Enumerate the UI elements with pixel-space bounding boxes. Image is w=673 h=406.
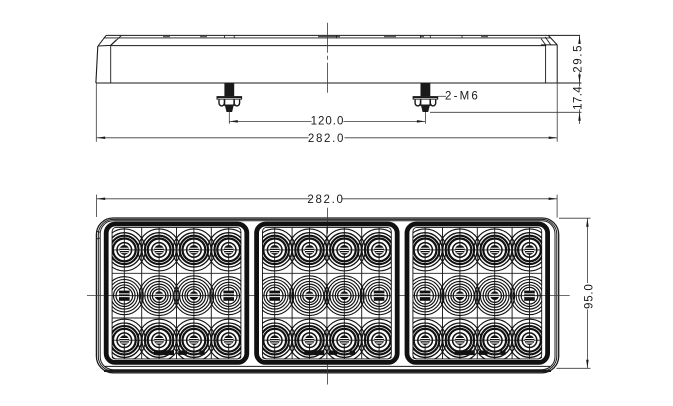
svg-text:120.0: 120.0	[311, 116, 345, 128]
svg-text:17.4: 17.4	[572, 86, 584, 110]
svg-text:282.0: 282.0	[307, 194, 344, 206]
svg-text:2-M6: 2-M6	[445, 90, 480, 102]
svg-text:282.0: 282.0	[308, 133, 345, 145]
svg-text:95.0: 95.0	[583, 283, 595, 309]
svg-text:29.5: 29.5	[572, 44, 584, 73]
